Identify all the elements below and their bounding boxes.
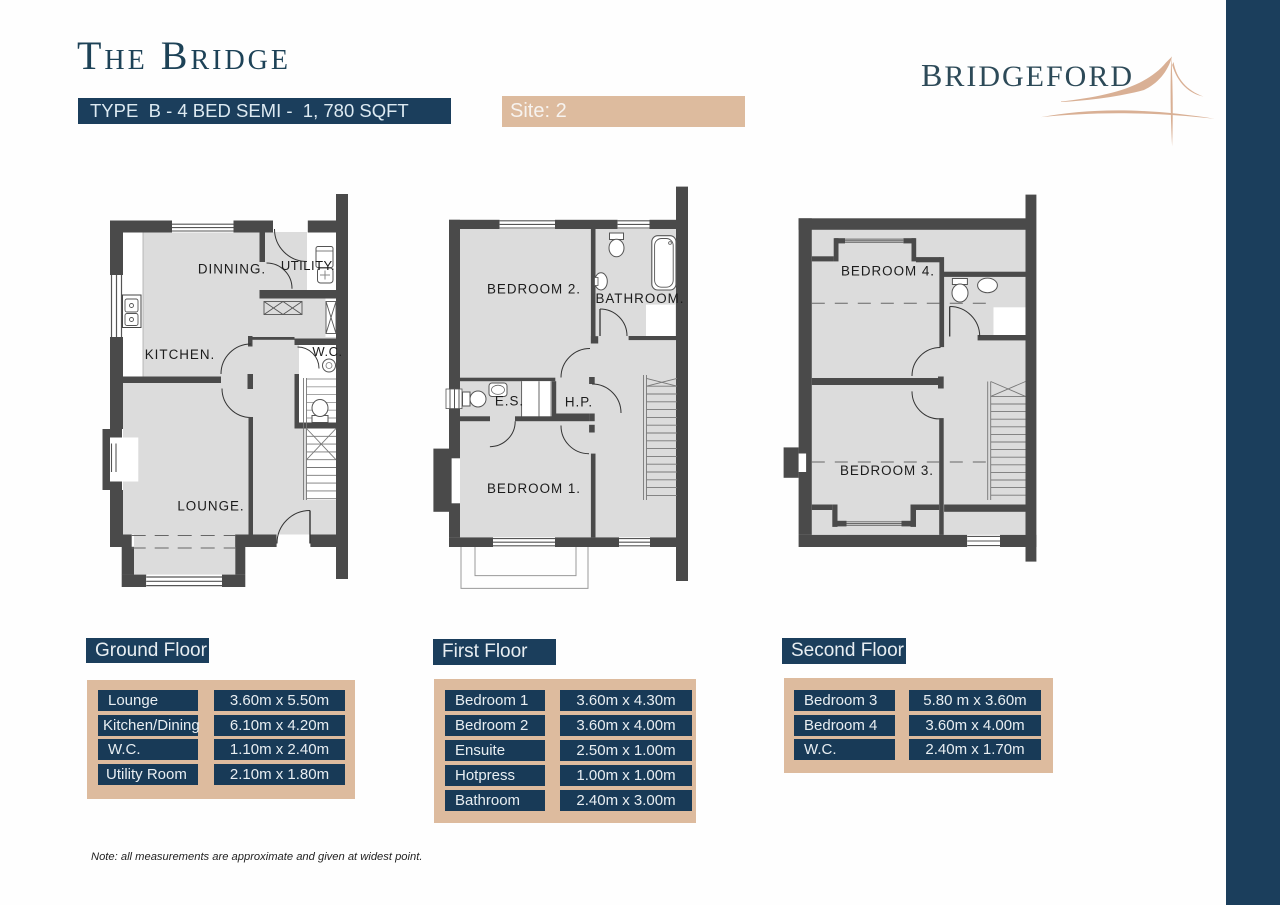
svg-text:BEDROOM 2.: BEDROOM 2.	[487, 282, 581, 297]
svg-text:BEDROOM 1.: BEDROOM 1.	[487, 481, 581, 496]
svg-text:BEDROOM 4.: BEDROOM 4.	[841, 264, 935, 279]
svg-text:UTILITY.: UTILITY.	[281, 258, 335, 273]
svg-text:LOUNGE.: LOUNGE.	[177, 499, 244, 514]
svg-text:BRIDGEFORD: BRIDGEFORD	[921, 57, 1134, 93]
svg-text:H.P.: H.P.	[565, 395, 593, 410]
svg-text:BEDROOM 3.: BEDROOM 3.	[840, 463, 934, 478]
svg-text:BATHROOM.: BATHROOM.	[595, 291, 684, 306]
svg-text:KITCHEN.: KITCHEN.	[145, 347, 216, 362]
svg-text:E.S.: E.S.	[495, 394, 524, 409]
svg-text:W.C.: W.C.	[312, 344, 342, 359]
svg-text:DINNING.: DINNING.	[198, 262, 266, 277]
